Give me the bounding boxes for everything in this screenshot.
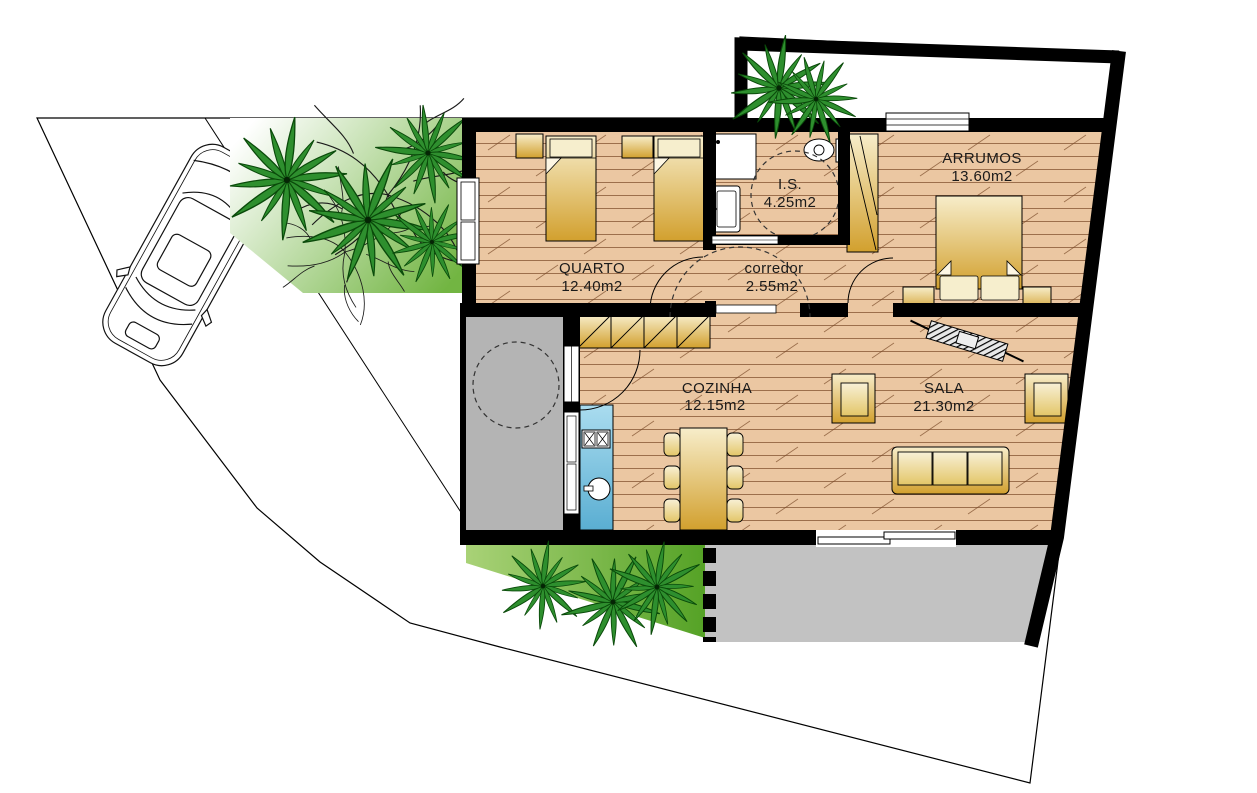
label-corredor-area: 2.55m2 bbox=[746, 278, 798, 295]
dining-table bbox=[680, 428, 727, 530]
kitchen-counter bbox=[580, 405, 613, 530]
label-quarto-area: 12.40m2 bbox=[561, 278, 622, 295]
window-quarto-left bbox=[457, 178, 479, 264]
single-bed bbox=[654, 136, 704, 241]
entry-patio bbox=[466, 317, 563, 530]
sliding-door-kitchen bbox=[716, 305, 776, 313]
wall-bath-arrumos bbox=[838, 132, 850, 244]
window-arrumos-top bbox=[886, 113, 969, 131]
door-patio bbox=[564, 346, 579, 402]
wall-quarto-bath bbox=[703, 132, 716, 250]
terrace-step-marks bbox=[703, 548, 716, 642]
kitchen-cabinets bbox=[578, 315, 710, 348]
sliding-door-bathroom bbox=[712, 236, 778, 244]
label-arrumos-name: ARRUMOS bbox=[942, 150, 1021, 167]
label-cozinha-name: COZINHA bbox=[682, 380, 752, 397]
wardrobe bbox=[847, 134, 878, 252]
sofa bbox=[892, 447, 1009, 494]
terrace bbox=[705, 543, 1055, 642]
double-bed bbox=[936, 196, 1022, 300]
wall-top bbox=[462, 118, 1116, 132]
single-bed bbox=[546, 136, 596, 241]
armchair bbox=[832, 374, 875, 423]
armchair bbox=[1025, 374, 1068, 423]
wall-bottom bbox=[460, 530, 1058, 545]
nightstand bbox=[516, 134, 543, 158]
wall-slider-jamb bbox=[705, 301, 716, 317]
label-is-name: I.S. bbox=[778, 176, 802, 193]
label-quarto-name: QUARTO bbox=[559, 260, 625, 277]
wall-mid-d bbox=[893, 303, 1083, 317]
washbasin bbox=[713, 186, 740, 232]
window-patio bbox=[564, 412, 579, 514]
wall-mid-c bbox=[800, 303, 848, 317]
label-sala-area: 21.30m2 bbox=[913, 398, 974, 415]
label-corredor-name: corredor bbox=[744, 260, 803, 277]
patio-left-wall bbox=[460, 317, 466, 530]
label-arrumos-area: 13.60m2 bbox=[951, 168, 1012, 185]
sliding-door-sala bbox=[816, 530, 956, 547]
label-sala-name: SALA bbox=[924, 380, 964, 397]
wall-mid-a bbox=[460, 303, 716, 317]
nightstand bbox=[622, 136, 653, 158]
floor-plan-canvas: QUARTO 12.40m2 I.S. 4.25m2 corredor 2.55… bbox=[0, 0, 1257, 793]
stove bbox=[582, 430, 610, 448]
shower bbox=[710, 134, 756, 179]
label-cozinha-area: 12.15m2 bbox=[684, 397, 745, 414]
label-is-area: 4.25m2 bbox=[764, 194, 816, 211]
